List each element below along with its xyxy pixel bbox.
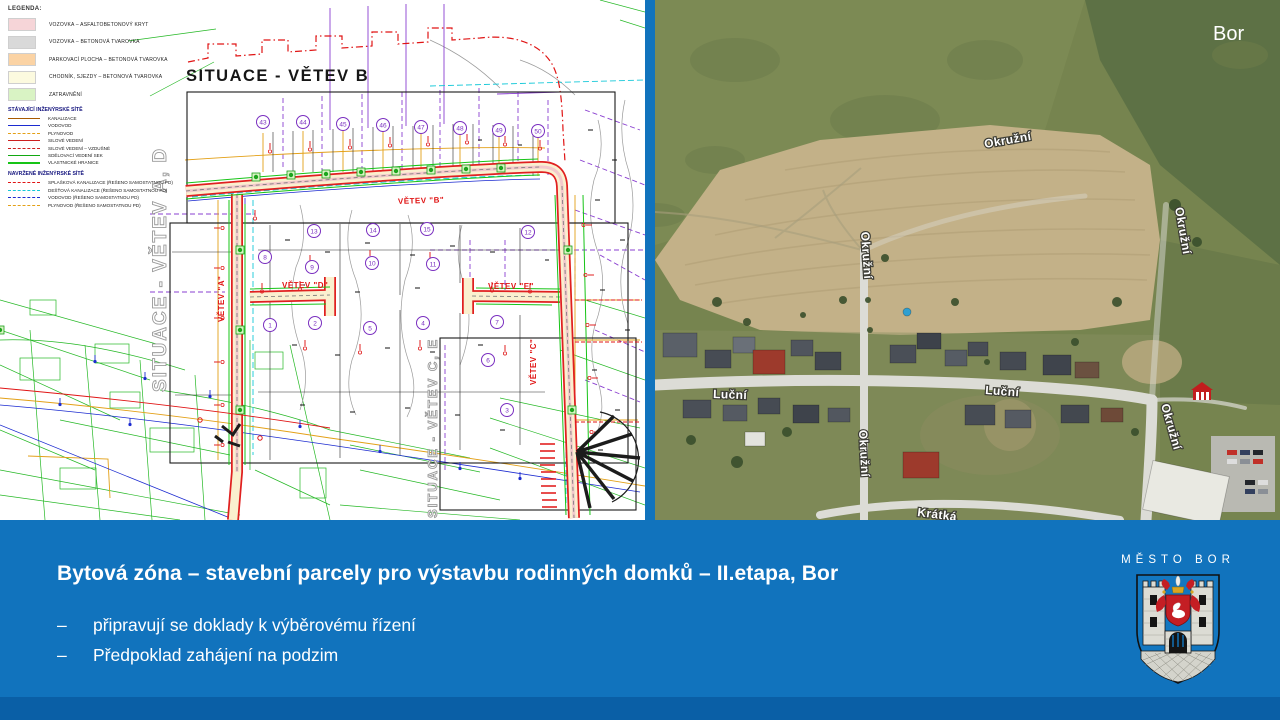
grass-texture	[1212, 41, 1268, 69]
bullet-marker: –	[57, 645, 93, 666]
svg-text:Luční: Luční	[713, 387, 748, 402]
svg-text:VĚTEV "A": VĚTEV "A"	[217, 276, 226, 322]
svg-text:43: 43	[259, 120, 267, 127]
bullet-text: Předpoklad zahájení na podzim	[93, 645, 338, 666]
legend-label: VOZOVKA – ASFALTOBETONOVÝ KRYT	[49, 22, 149, 28]
line-sample	[8, 155, 40, 156]
swatch-grass	[8, 88, 36, 101]
legend-row: ZATRAVNĚNÍ	[8, 88, 183, 101]
swatch-concrete	[8, 36, 36, 49]
road-network	[186, 167, 574, 520]
svg-text:48: 48	[456, 126, 464, 133]
svg-text:3: 3	[505, 408, 509, 415]
legend-row: DEŠŤOVÁ KANALIZACE (ŘEŠENO SAMOSTATNOU P…	[8, 188, 183, 193]
aerial-photo-panel: Okružní Okružní Okružní Luční Luční Okru…	[655, 0, 1280, 520]
legend-row: VLASTNICKÉ HRANICE	[8, 160, 183, 165]
legend-row: SPLAŠKOVÁ KANALIZACE (ŘEŠENO SAMOSTATNOU…	[8, 180, 183, 185]
svg-text:45: 45	[339, 122, 347, 129]
legend-heading: LEGENDA:	[8, 6, 183, 12]
legend-row: VODOVOD (ŘEŠENO SAMOSTATNOU PD)	[8, 195, 183, 200]
line-sample	[8, 190, 40, 191]
photo-corner-label: Bor	[1213, 23, 1244, 45]
svg-text:Okružní: Okružní	[856, 429, 872, 477]
line-sample	[8, 133, 40, 134]
svg-text:Luční: Luční	[985, 383, 1020, 399]
legend-row: CHODNÍK, SJEZDY – BETONOVÁ TVAROVKA	[8, 71, 183, 84]
legend-row: SDĚLOVACÍ VEDENÍ SEK	[8, 153, 183, 158]
legend-row: SILOVÉ VEDENÍ	[8, 138, 183, 143]
legend-row: PLYNOVOD (ŘEŠENO SAMOSTATNOU PD)	[8, 203, 183, 208]
svg-text:8: 8	[263, 255, 267, 262]
svg-text:47: 47	[417, 125, 425, 132]
line-sample	[8, 118, 40, 119]
legend-row: VOZOVKA – BETONOVÁ TVAROVKA	[8, 36, 183, 49]
map-legend: LEGENDA: VOZOVKA – ASFALTOBETONOVÝ KRYT …	[8, 6, 183, 210]
contour-lines	[292, 40, 633, 435]
svg-text:VĚTEV "E": VĚTEV "E"	[488, 282, 534, 291]
aerial-photo: Okružní Okružní Okružní Luční Luční Okru…	[655, 0, 1280, 520]
line-sample	[8, 125, 40, 126]
map-title: SITUACE - VĚTEV B	[186, 66, 369, 85]
svg-text:13: 13	[310, 229, 318, 236]
line-sample	[8, 182, 40, 183]
line-sample	[8, 162, 40, 164]
legend-row: VODOVOD	[8, 123, 183, 128]
map-side-label-right: SITUACE - VĚTEV C, E	[425, 338, 440, 518]
city-label: MĚSTO BOR	[1118, 554, 1238, 566]
svg-text:7: 7	[495, 320, 499, 327]
legend-label: PARKOVACÍ PLOCHA – BETONOVÁ TVAROVKA	[49, 57, 168, 63]
legend-proposed-heading: NAVRŽENÉ INŽENÝRSKÉ SÍTĚ	[8, 171, 183, 177]
svg-text:44: 44	[299, 120, 307, 127]
svg-text:1: 1	[268, 323, 272, 330]
bullet-item: – Předpoklad zahájení na podzim	[57, 645, 338, 666]
svg-text:11: 11	[430, 262, 437, 269]
svg-text:14: 14	[369, 228, 377, 235]
legend-row: KANALIZACE	[8, 116, 183, 121]
svg-text:2: 2	[313, 321, 317, 328]
legend-label: CHODNÍK, SJEZDY – BETONOVÁ TVAROVKA	[49, 74, 162, 80]
grass-mid-patch	[1150, 240, 1280, 405]
slide-title: Bytová zóna – stavební parcely pro výsta…	[57, 562, 838, 586]
svg-text:5: 5	[368, 326, 372, 333]
legend-row: PARKOVACÍ PLOCHA – BETONOVÁ TVAROVKA	[8, 53, 183, 66]
road-verges	[186, 159, 590, 515]
bullet-text: připravují se doklady k výběrovému řízen…	[93, 615, 416, 636]
line-sample	[8, 148, 40, 149]
legend-row: PLYNOVOD	[8, 131, 183, 136]
svg-text:VĚTEV "C": VĚTEV "C"	[529, 339, 538, 385]
footer-strip	[0, 697, 1280, 720]
svg-text:15: 15	[423, 227, 431, 234]
legend-existing-heading: STÁVAJÍCÍ INŽENÝRSKÉ SÍTĚ	[8, 107, 183, 113]
map-panel: LEGENDA: VOZOVKA – ASFALTOBETONOVÝ KRYT …	[0, 0, 645, 520]
svg-text:46: 46	[379, 123, 387, 130]
svg-text:4: 4	[421, 321, 425, 328]
swatch-asphalt	[8, 18, 36, 31]
svg-text:50: 50	[534, 129, 542, 136]
site-boundary	[188, 28, 565, 162]
svg-text:6: 6	[486, 358, 490, 365]
swatch-sidewalk	[8, 71, 36, 84]
swatch-parking	[8, 53, 36, 66]
svg-text:12: 12	[524, 230, 532, 237]
legend-row: VOZOVKA – ASFALTOBETONOVÝ KRYT	[8, 18, 183, 31]
legend-label: VOZOVKA – BETONOVÁ TVAROVKA	[49, 39, 140, 45]
svg-text:10: 10	[368, 261, 376, 268]
line-sample	[8, 197, 40, 198]
svg-text:VĚTEV "B": VĚTEV "B"	[398, 195, 445, 206]
svg-text:VĚTEV "D": VĚTEV "D"	[282, 281, 328, 290]
svg-text:9: 9	[310, 265, 314, 272]
svg-text:49: 49	[495, 128, 503, 135]
legend-label: ZATRAVNĚNÍ	[49, 92, 82, 98]
bullet-marker: –	[57, 615, 93, 636]
bullet-item: – připravují se doklady k výběrovému říz…	[57, 615, 416, 636]
utility-symbols	[58, 355, 521, 480]
line-sample	[8, 205, 40, 206]
city-emblem: MĚSTO BOR	[1118, 554, 1238, 690]
legend-row: SILOVÉ VEDENÍ – VZDUŠNÉ	[8, 146, 183, 151]
coat-of-arms-icon	[1133, 573, 1223, 685]
line-sample	[8, 140, 40, 141]
presentation-slide: LEGENDA: VOZOVKA – ASFALTOBETONOVÝ KRYT …	[0, 0, 1280, 720]
